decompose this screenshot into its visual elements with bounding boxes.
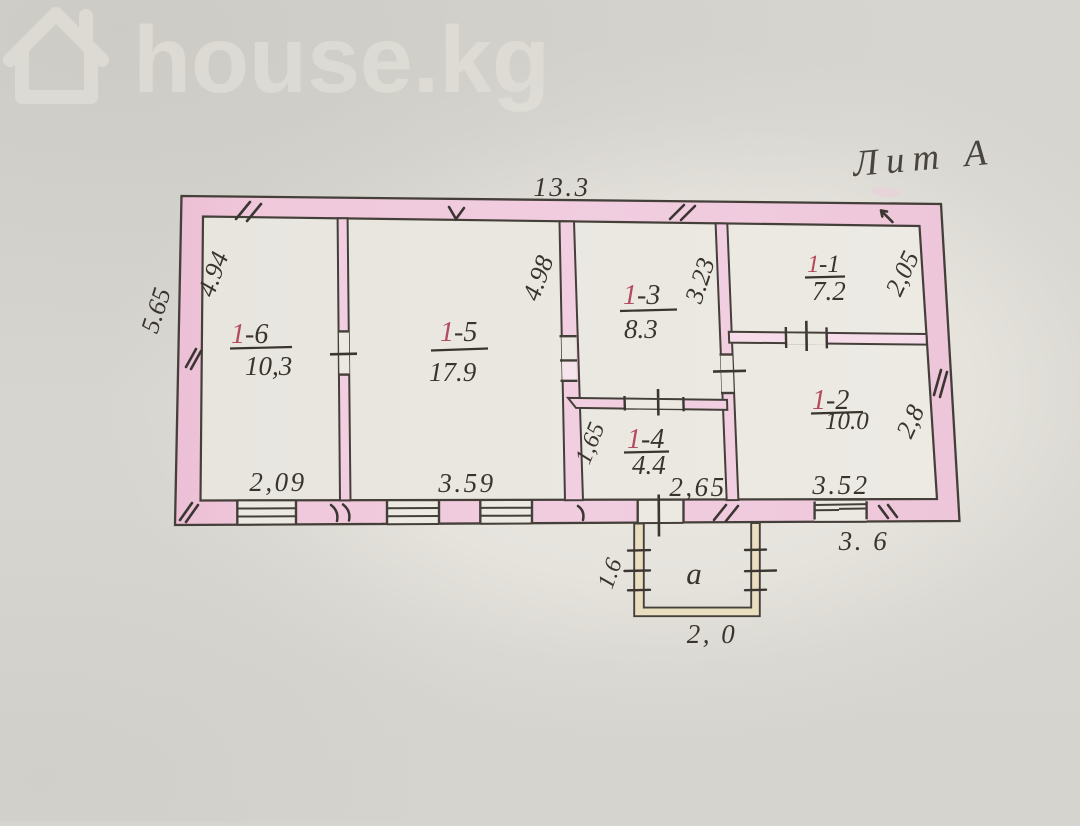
svg-text:-5: -5	[454, 317, 477, 348]
svg-text:2, 0: 2, 0	[687, 619, 738, 649]
svg-text:10,3: 10,3	[245, 351, 292, 381]
svg-text:1: 1	[623, 280, 637, 311]
svg-text:1: 1	[231, 319, 245, 350]
svg-text:2,65: 2,65	[669, 472, 726, 502]
svg-text:17.9: 17.9	[429, 357, 477, 387]
svg-text:4.4: 4.4	[632, 450, 666, 480]
svg-text:-6: -6	[245, 319, 268, 350]
svg-text:1: 1	[812, 385, 826, 416]
svg-text:2,09: 2,09	[249, 467, 306, 497]
svg-text:3.59: 3.59	[437, 468, 495, 498]
svg-text:8.3: 8.3	[624, 314, 658, 344]
svg-text:-3: -3	[637, 280, 660, 311]
svg-text:1: 1	[807, 251, 820, 278]
svg-text:а: а	[686, 556, 702, 591]
svg-text:7.2: 7.2	[812, 276, 846, 306]
svg-text:1: 1	[440, 317, 454, 348]
svg-text:-1: -1	[819, 251, 840, 278]
svg-text:10.0: 10.0	[825, 408, 869, 435]
svg-text:house.kg: house.kg	[133, 7, 550, 113]
svg-text:3. 6: 3. 6	[838, 526, 890, 556]
svg-text:3.52: 3.52	[811, 470, 869, 500]
svg-text:13.3: 13.3	[533, 172, 590, 202]
